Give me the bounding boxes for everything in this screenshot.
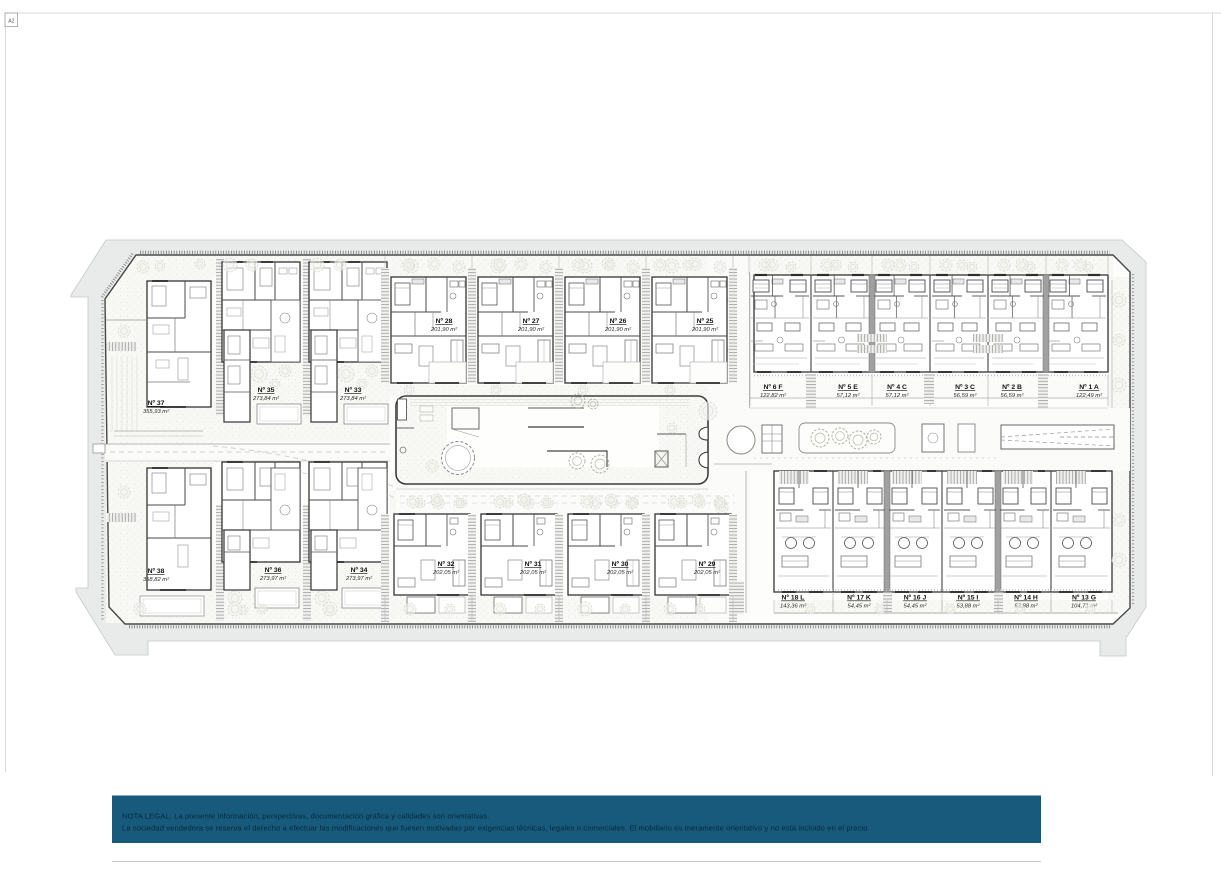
svg-text:201,90 m²: 201,90 m² xyxy=(604,327,632,333)
svg-text:53,88 m²: 53,88 m² xyxy=(957,604,981,610)
svg-text:273,97 m²: 273,97 m² xyxy=(345,576,373,582)
svg-text:355,93 m²: 355,93 m² xyxy=(143,409,170,415)
svg-text:273,97 m²: 273,97 m² xyxy=(259,576,287,582)
svg-text:358,82 m²: 358,82 m² xyxy=(143,577,170,583)
svg-text:202,05 m²: 202,05 m² xyxy=(432,570,460,576)
svg-text:202,05 m²: 202,05 m² xyxy=(519,570,547,576)
svg-text:273,84 m²: 273,84 m² xyxy=(252,396,280,402)
svg-text:202,05 m²: 202,05 m² xyxy=(606,570,634,576)
svg-text:202,05 m²: 202,05 m² xyxy=(693,570,721,576)
svg-text:201,90 m²: 201,90 m² xyxy=(430,327,458,333)
svg-text:201,90 m²: 201,90 m² xyxy=(691,327,719,333)
svg-text:143,36 m²: 143,36 m² xyxy=(780,604,807,610)
svg-text:La sociedad vendedora se reser: La sociedad vendedora se reserva el dere… xyxy=(122,824,870,833)
svg-text:A2: A2 xyxy=(8,19,14,25)
svg-text:NOTA LEGAL: La presente infor: NOTA LEGAL: La presente información, per… xyxy=(122,812,490,821)
svg-text:54,45 m²: 54,45 m² xyxy=(904,604,928,610)
svg-text:54,45 m²: 54,45 m² xyxy=(848,604,872,610)
svg-text:273,84 m²: 273,84 m² xyxy=(339,396,367,402)
svg-text:201,90 m²: 201,90 m² xyxy=(517,327,545,333)
